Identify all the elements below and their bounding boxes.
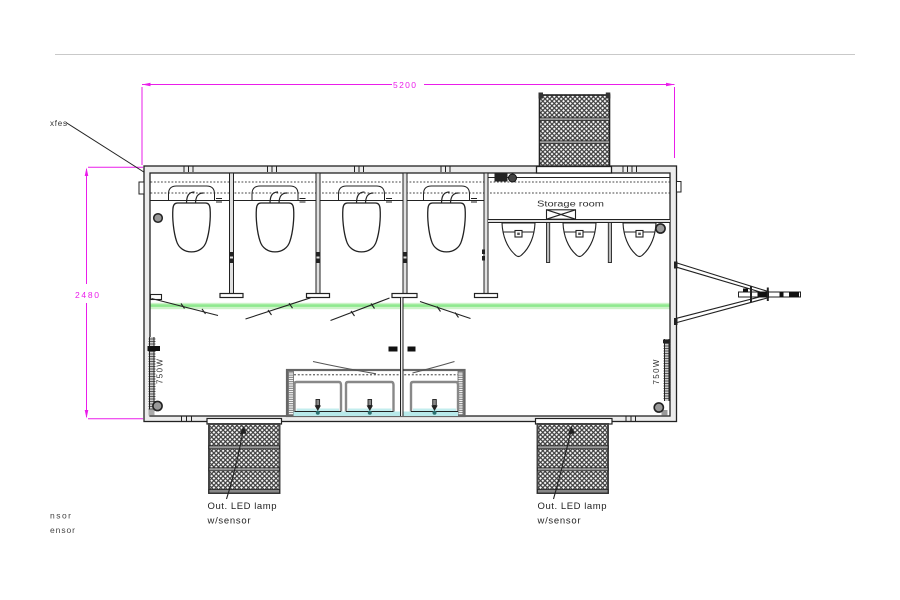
svg-text:750W: 750W	[652, 359, 661, 384]
svg-text:2480: 2480	[75, 290, 99, 300]
svg-text:xfes: xfes	[50, 119, 67, 128]
svg-text:Out. LED lamp: Out. LED lamp	[208, 501, 277, 512]
svg-text:Out. LED lamp: Out. LED lamp	[538, 501, 607, 512]
svg-text:5200: 5200	[393, 80, 416, 90]
svg-text:750W: 750W	[156, 359, 165, 384]
svg-text:ensor: ensor	[50, 525, 75, 535]
svg-text:w/sensor: w/sensor	[207, 516, 251, 527]
svg-text:w/sensor: w/sensor	[537, 516, 581, 527]
svg-text:nsor: nsor	[50, 511, 71, 521]
svg-text:Storage room: Storage room	[537, 200, 604, 209]
